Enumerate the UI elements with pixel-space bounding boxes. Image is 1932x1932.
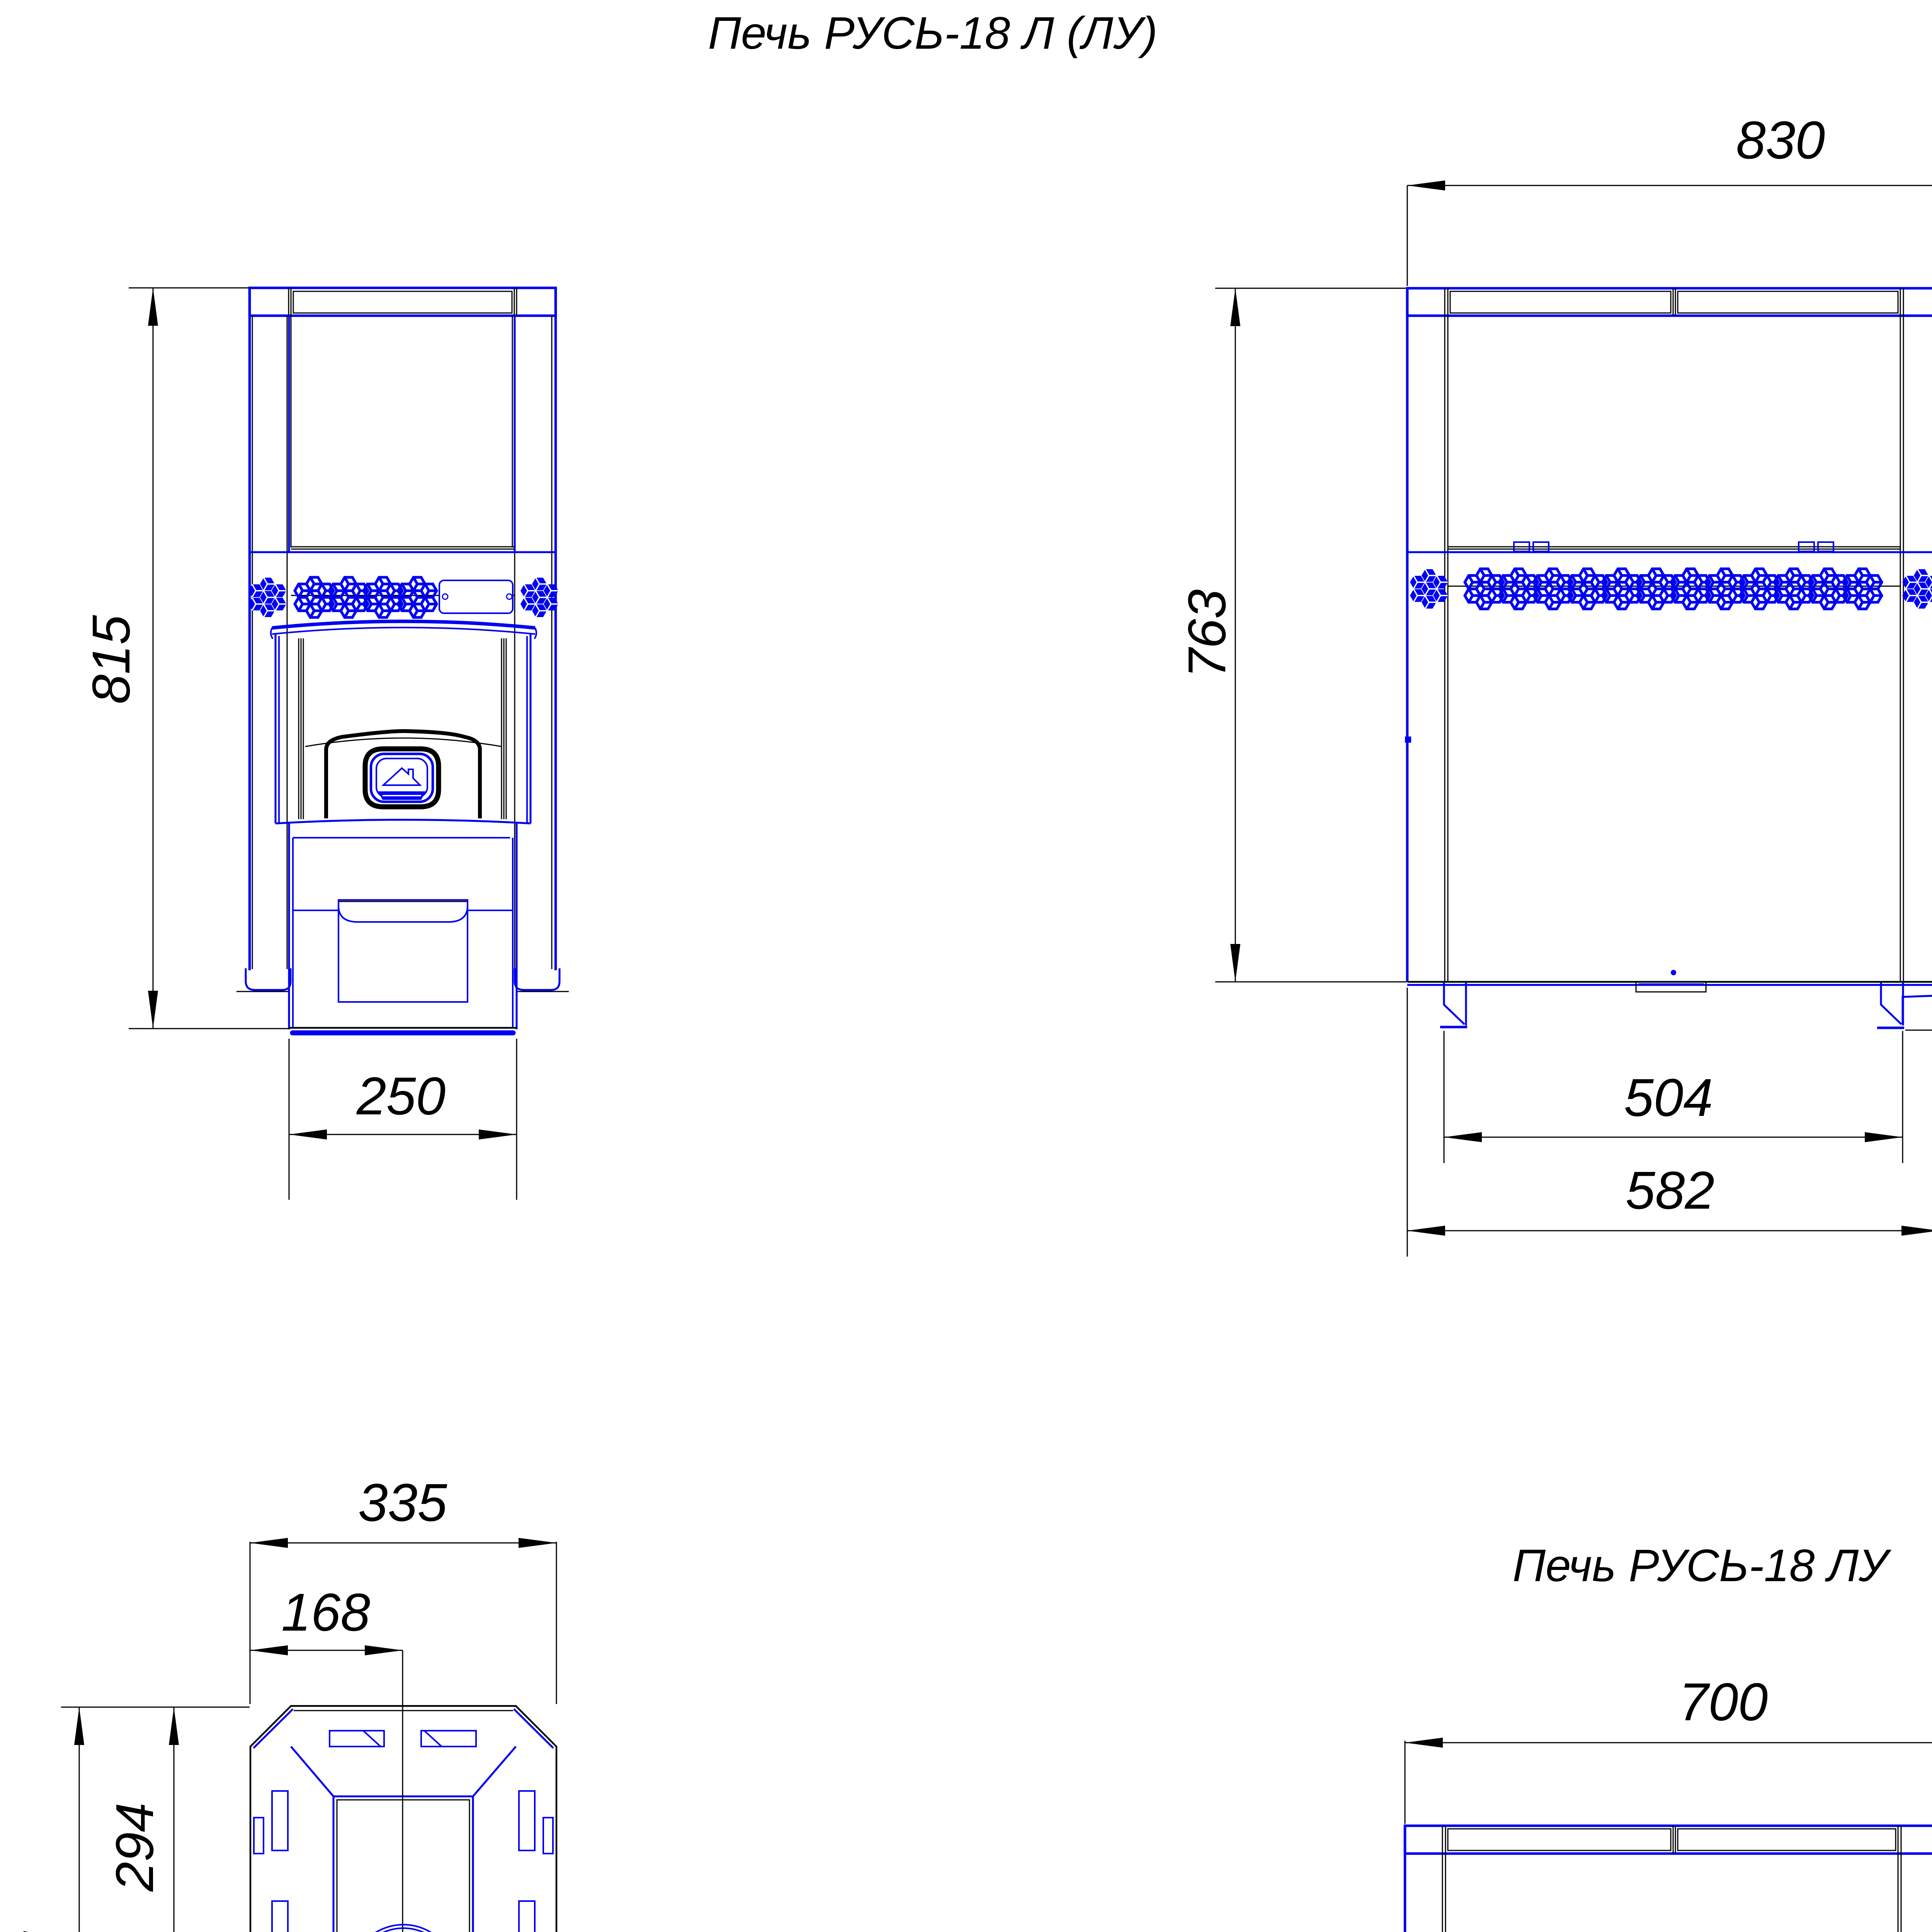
svg-text:700: 700 — [1679, 1672, 1768, 1732]
svg-text:830: 830 — [1736, 111, 1825, 170]
svg-text:Печь РУСЬ-18 ЛУ: Печь РУСЬ-18 ЛУ — [1513, 1540, 1892, 1591]
svg-text:582: 582 — [1626, 1161, 1714, 1220]
svg-text:335: 335 — [358, 1473, 447, 1532]
svg-text:815: 815 — [82, 615, 141, 704]
svg-text:763: 763 — [1177, 589, 1237, 678]
svg-text:250: 250 — [356, 1066, 446, 1126]
svg-text:504: 504 — [1624, 1068, 1713, 1128]
svg-text:168: 168 — [281, 1583, 370, 1642]
svg-text:294: 294 — [105, 1803, 165, 1892]
svg-text:Печь РУСЬ-18 Л (ЛУ): Печь РУСЬ-18 Л (ЛУ) — [708, 8, 1157, 59]
